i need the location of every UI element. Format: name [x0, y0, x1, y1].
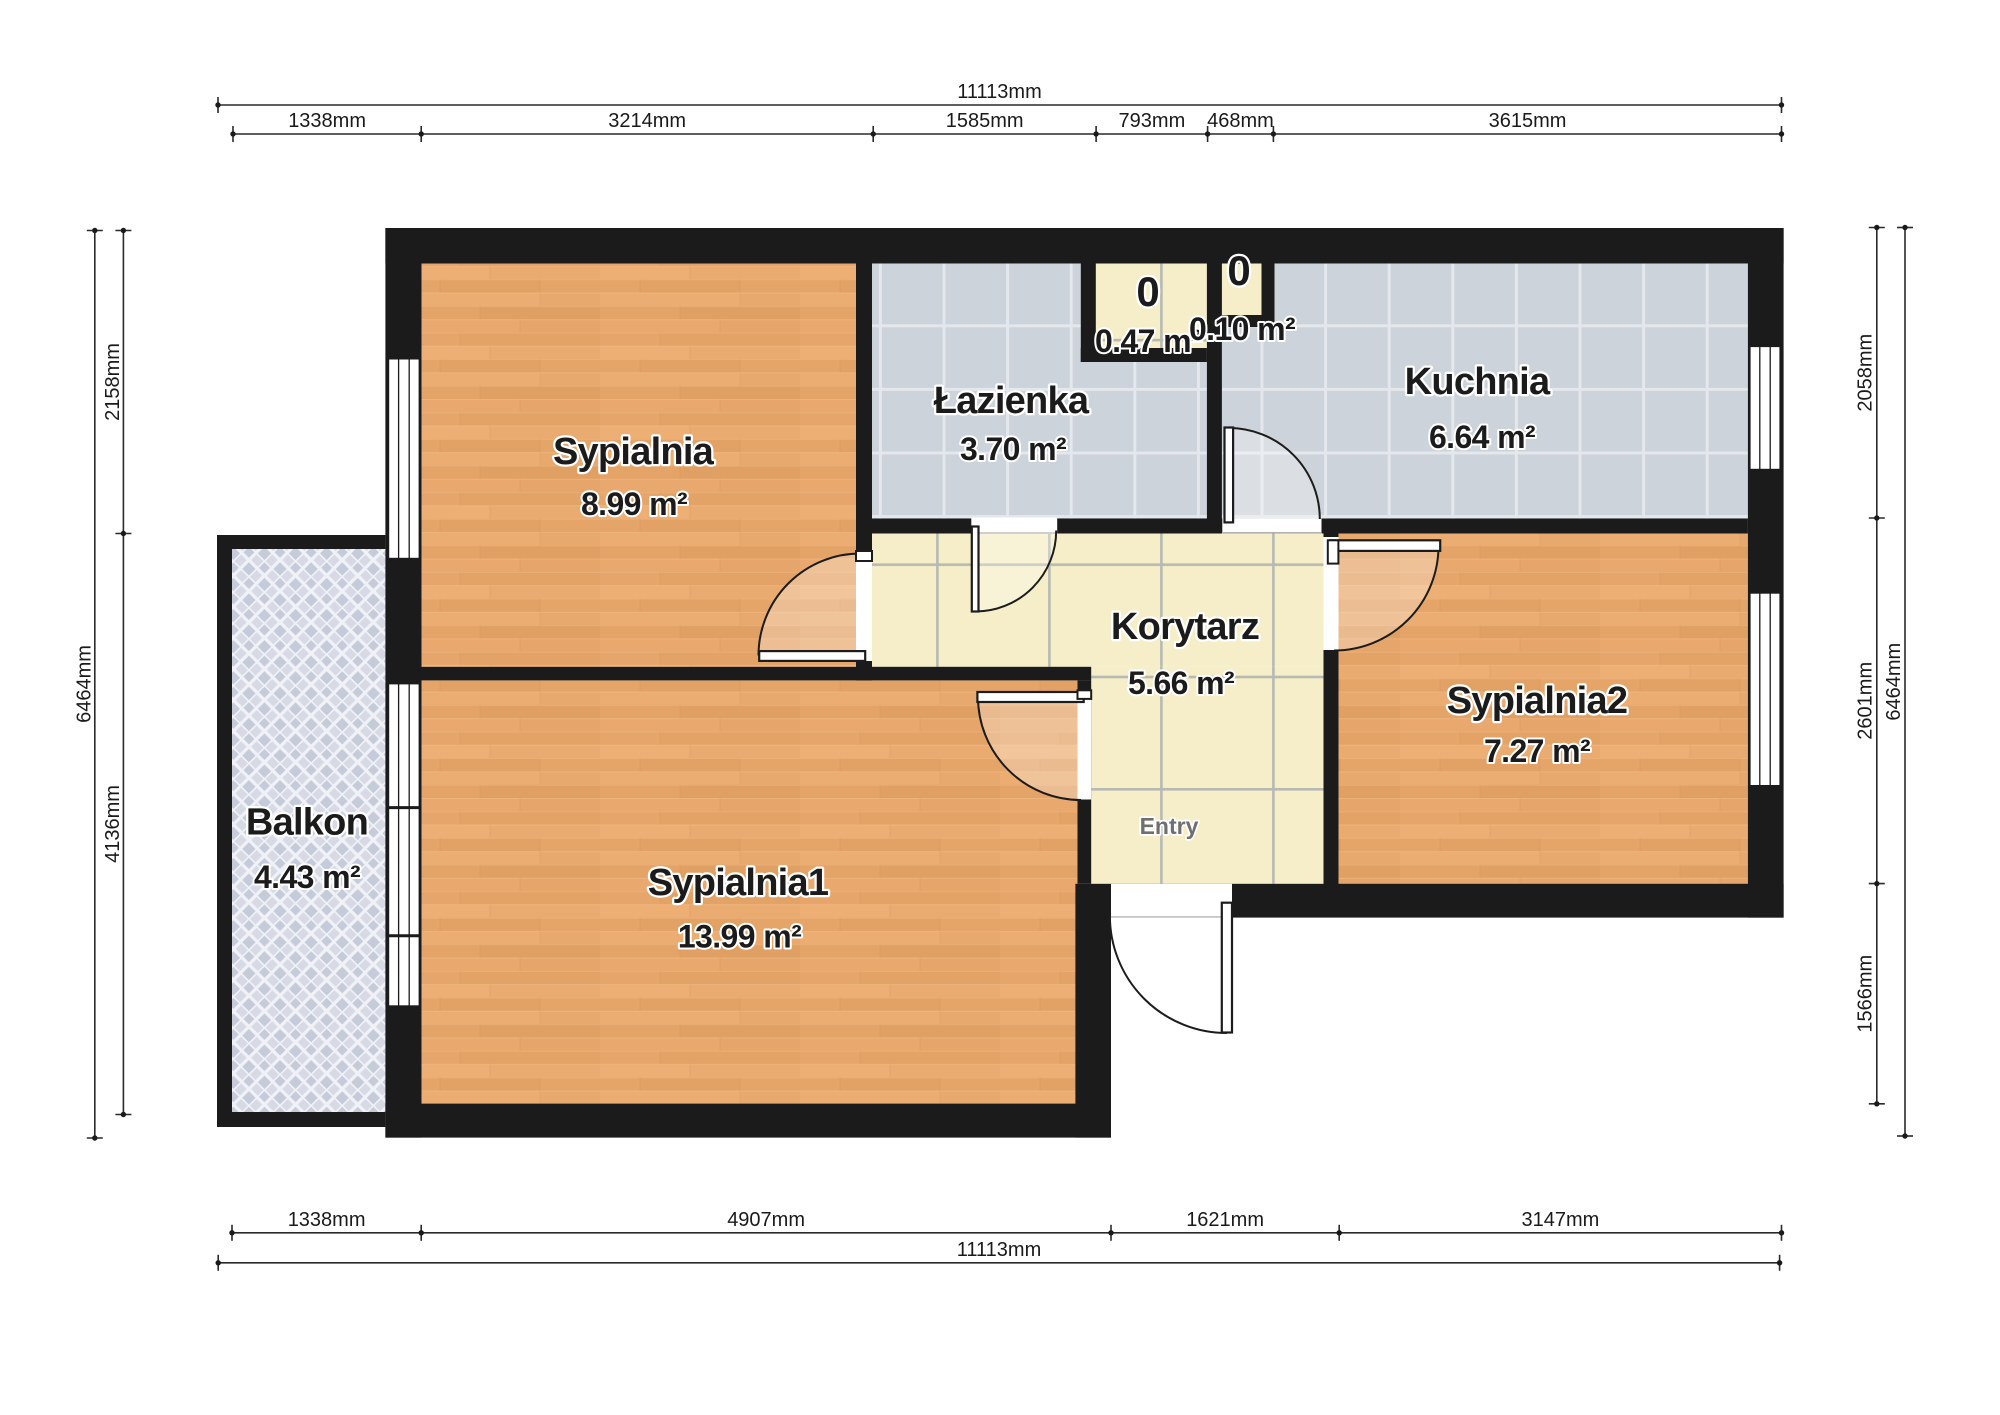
- svg-text:1621mm: 1621mm: [1186, 1209, 1264, 1231]
- svg-text:793mm: 793mm: [1119, 110, 1186, 132]
- svg-text:4.43 m²: 4.43 m²: [254, 859, 360, 895]
- svg-text:7.27 m²: 7.27 m²: [1484, 733, 1590, 769]
- svg-text:Sypialnia: Sypialnia: [553, 431, 715, 473]
- svg-text:Balkon: Balkon: [246, 802, 368, 844]
- svg-text:2058mm: 2058mm: [1855, 334, 1877, 412]
- svg-text:1338mm: 1338mm: [288, 110, 366, 132]
- svg-text:3.70 m²: 3.70 m²: [960, 431, 1066, 467]
- svg-text:2158mm: 2158mm: [102, 343, 124, 421]
- svg-text:1566mm: 1566mm: [1855, 955, 1877, 1033]
- svg-text:6464mm: 6464mm: [1883, 643, 1905, 721]
- svg-text:3147mm: 3147mm: [1521, 1209, 1599, 1231]
- svg-text:3615mm: 3615mm: [1489, 110, 1567, 132]
- svg-text:8.99 m²: 8.99 m²: [581, 486, 687, 522]
- svg-text:4907mm: 4907mm: [727, 1209, 805, 1231]
- svg-text:0: 0: [1227, 247, 1250, 294]
- svg-text:Entry: Entry: [1140, 813, 1199, 839]
- svg-text:0.47 m²: 0.47 m²: [1095, 323, 1201, 359]
- svg-text:Korytarz: Korytarz: [1111, 606, 1259, 648]
- svg-text:11113mm: 11113mm: [957, 1239, 1041, 1261]
- svg-text:0: 0: [1136, 268, 1159, 315]
- svg-text:13.99 m²: 13.99 m²: [678, 919, 801, 955]
- svg-text:6.64 m²: 6.64 m²: [1429, 419, 1535, 455]
- svg-text:6464mm: 6464mm: [73, 645, 95, 723]
- svg-text:1585mm: 1585mm: [946, 110, 1024, 132]
- svg-text:4136mm: 4136mm: [102, 785, 124, 863]
- svg-text:Łazienka: Łazienka: [934, 380, 1090, 422]
- svg-text:0.10 m²: 0.10 m²: [1189, 311, 1295, 347]
- svg-text:Kuchnia: Kuchnia: [1405, 361, 1551, 403]
- svg-text:Sypialnia1: Sypialnia1: [648, 862, 829, 904]
- svg-text:3214mm: 3214mm: [608, 110, 686, 132]
- svg-text:1338mm: 1338mm: [288, 1209, 366, 1231]
- svg-text:11113mm: 11113mm: [957, 81, 1041, 103]
- svg-text:2601mm: 2601mm: [1855, 662, 1877, 740]
- svg-text:Sypialnia2: Sypialnia2: [1447, 680, 1627, 722]
- svg-text:468mm: 468mm: [1207, 110, 1274, 132]
- svg-text:5.66 m²: 5.66 m²: [1128, 665, 1234, 701]
